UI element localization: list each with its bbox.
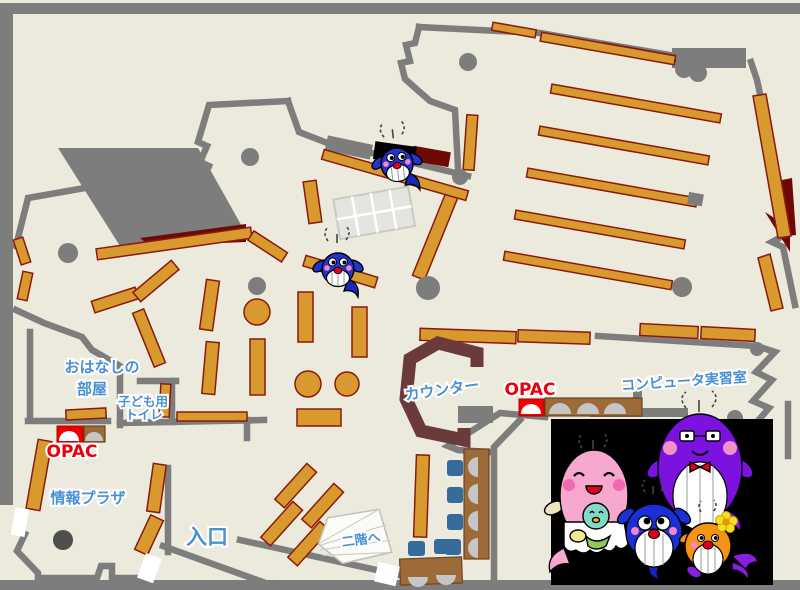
label-opac-left: OPAC [47, 442, 98, 462]
label-info-plaza: 情報プラザ [50, 489, 125, 507]
opac-station-center [519, 398, 642, 416]
label-opac-center: OPAC [505, 380, 556, 400]
label-storytelling-room-line2: 部屋 [77, 380, 107, 398]
library-floor-map: おはなしの 部屋 子ども用 トイレ OPAC 情報プラザ 入口 カウンター OP… [0, 0, 800, 590]
label-storytelling-room-line1: おはなしの [64, 358, 139, 376]
label-kids-toilet-line2: トイレ [125, 407, 163, 422]
opac-station-left [57, 426, 105, 442]
floor-map-canvas: おはなしの 部屋 子ども用 トイレ OPAC 情報プラザ 入口 カウンター OP… [0, 0, 800, 590]
label-entrance: 入口 [186, 525, 228, 549]
